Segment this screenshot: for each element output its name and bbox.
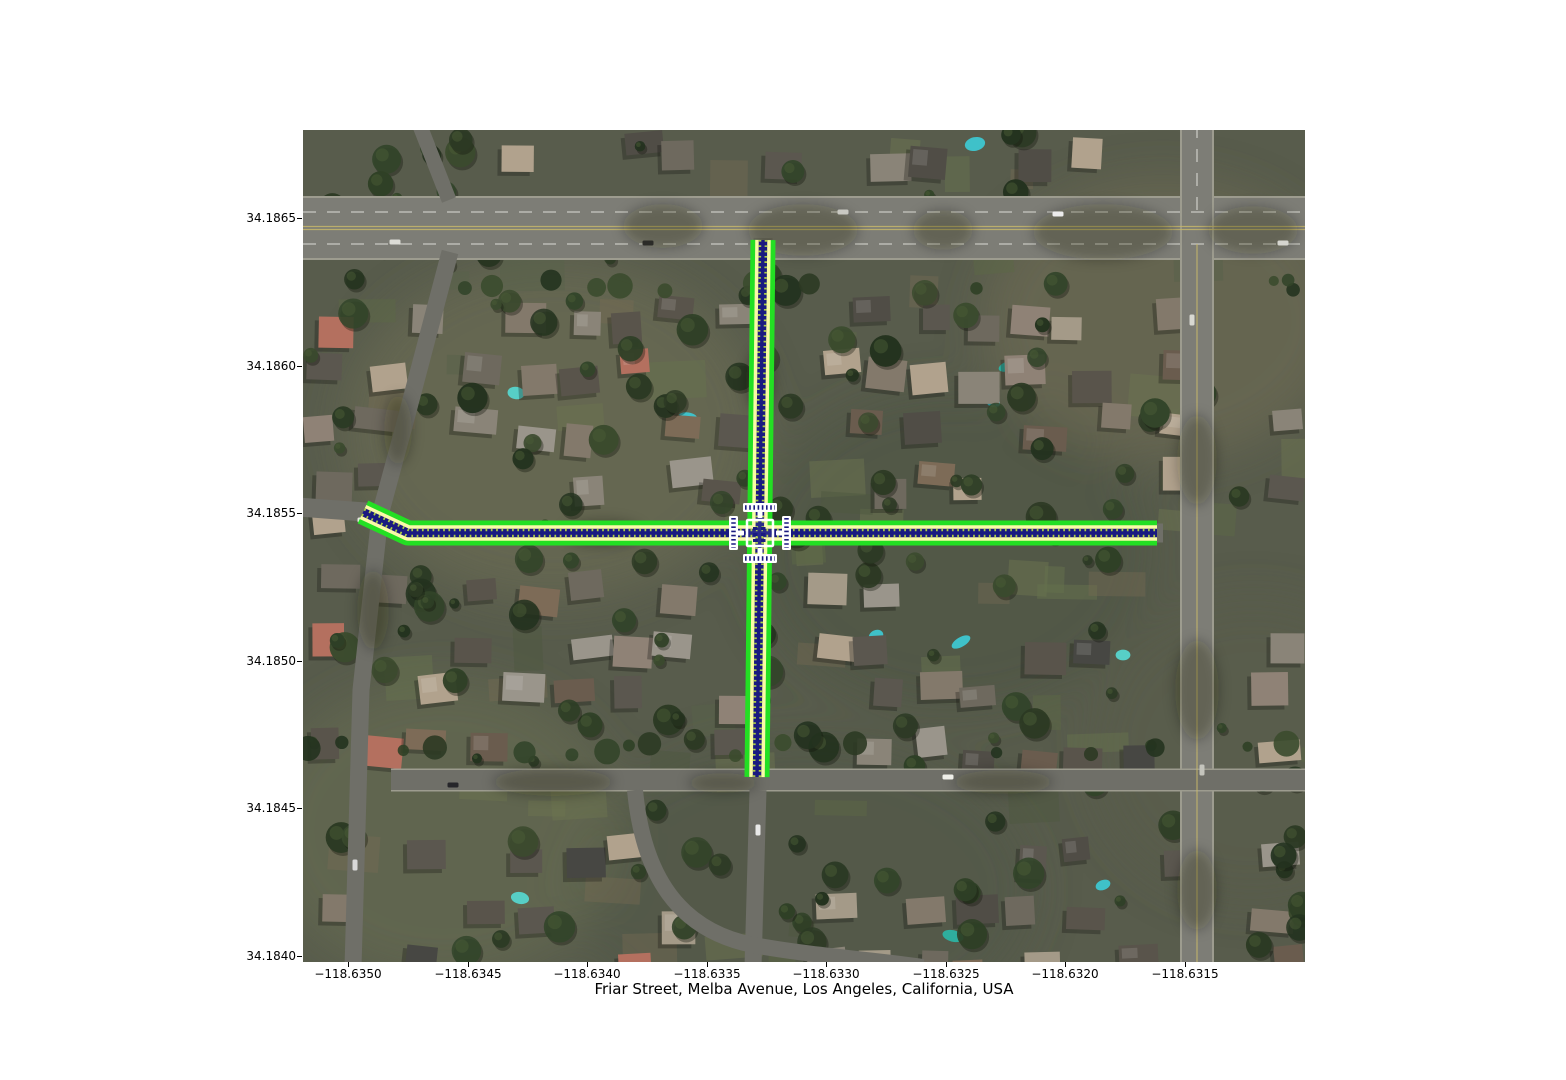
x-tick-label: −118.6320 — [1031, 967, 1098, 981]
map-plot — [303, 130, 1305, 962]
y-tick — [297, 808, 302, 809]
y-tick-label: 34.1855 — [246, 506, 296, 520]
figure-canvas: 34.1865 34.1860 34.1855 34.1850 34.1845 … — [0, 0, 1566, 1080]
y-tick — [297, 956, 302, 957]
satellite-map — [303, 130, 1305, 962]
y-tick-label: 34.1850 — [246, 654, 296, 668]
x-tick-label: −118.6325 — [912, 967, 979, 981]
y-tick — [297, 218, 302, 219]
y-tick — [297, 661, 302, 662]
y-tick-label: 34.1840 — [246, 949, 296, 963]
y-tick-label: 34.1865 — [246, 211, 296, 225]
y-tick-label: 34.1860 — [246, 359, 296, 373]
x-tick-label: −118.6350 — [314, 967, 381, 981]
x-tick-label: −118.6315 — [1151, 967, 1218, 981]
y-tick — [297, 366, 302, 367]
x-tick-label: −118.6340 — [553, 967, 620, 981]
x-tick-label: −118.6330 — [792, 967, 859, 981]
x-tick-label: −118.6335 — [673, 967, 740, 981]
y-tick-label: 34.1845 — [246, 801, 296, 815]
y-tick — [297, 513, 302, 514]
plot-title: Friar Street, Melba Avenue, Los Angeles,… — [594, 980, 1013, 998]
x-tick-label: −118.6345 — [434, 967, 501, 981]
